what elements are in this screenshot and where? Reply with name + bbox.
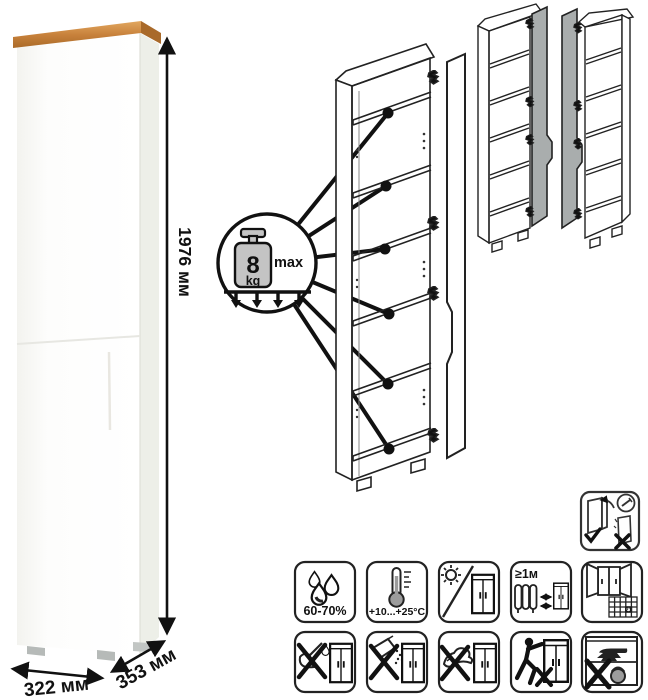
humidity-icon: 60-70% [295,562,355,622]
no-abrasive-powders-icon [367,632,427,692]
wireframe-foot [411,459,425,473]
wardrobe-glyph [402,644,424,682]
open-door-panel [447,54,465,458]
wardrobe-glyph [330,644,352,682]
product-photo [13,21,161,661]
variant-foot [492,241,502,252]
min-distance-label: ≥1м [515,567,538,581]
gray-door-left [562,9,582,228]
variant-shelves [490,50,529,216]
carcass-left-side [336,80,352,480]
no-wet-cloth-icon [439,632,499,692]
variant-shelves [586,48,621,212]
avoid-sunlight-icon [439,562,499,622]
height-dimension-label: 1976 мм [175,227,195,297]
gray-door-right [532,7,552,226]
temperature-icon: +10...+25°C [367,562,427,622]
shelves [353,92,431,461]
no-heavy-objects-icon [582,632,642,692]
width-dimension-label: 322 мм [23,674,90,700]
carcass-top-face [336,44,434,86]
calendar-day-label: 21 [625,607,631,613]
calendar-icon [609,597,637,617]
wireframe-foot [357,477,371,491]
heat-distance-icon: ≥1м [511,562,571,622]
kettlebell-icon [611,668,625,683]
do-not-drag-icon [511,632,571,692]
no-aggressive-liquids-icon [295,632,355,692]
door-variant-right-hinged [478,4,552,252]
anchor-to-wall-icon [581,492,639,550]
temperature-label: +10...+25°C [369,606,426,618]
variant-foot [612,226,622,237]
humidity-label: 60-70% [303,604,346,618]
variant-foot [590,237,600,248]
load-limit-callout: 8 kg max [218,214,316,312]
hinge-icon [526,18,534,29]
cabinet-side-panel [140,33,159,654]
door-variant-left-hinged [562,9,633,248]
spec-illustration: 1976 мм 322 мм 353 мм [0,0,648,700]
hinge-icon [526,134,534,145]
cabinet-foot-left [27,646,45,656]
ventilation-icon: 21 [582,562,642,622]
hinge-icon [526,96,534,107]
shelf-callout-dots [380,108,395,455]
hinge-icon [526,206,534,217]
wardrobe-glyph [554,583,569,609]
door-handle-groove [109,352,110,430]
load-limit-qualifier: max [274,255,303,271]
load-limit-unit: kg [246,274,261,288]
product-spec-sheet: 1976 мм 322 мм 353 мм [0,0,648,700]
open-window-icon [587,564,631,597]
wardrobe-glyph [474,644,496,682]
wardrobe-glyph [472,575,494,613]
